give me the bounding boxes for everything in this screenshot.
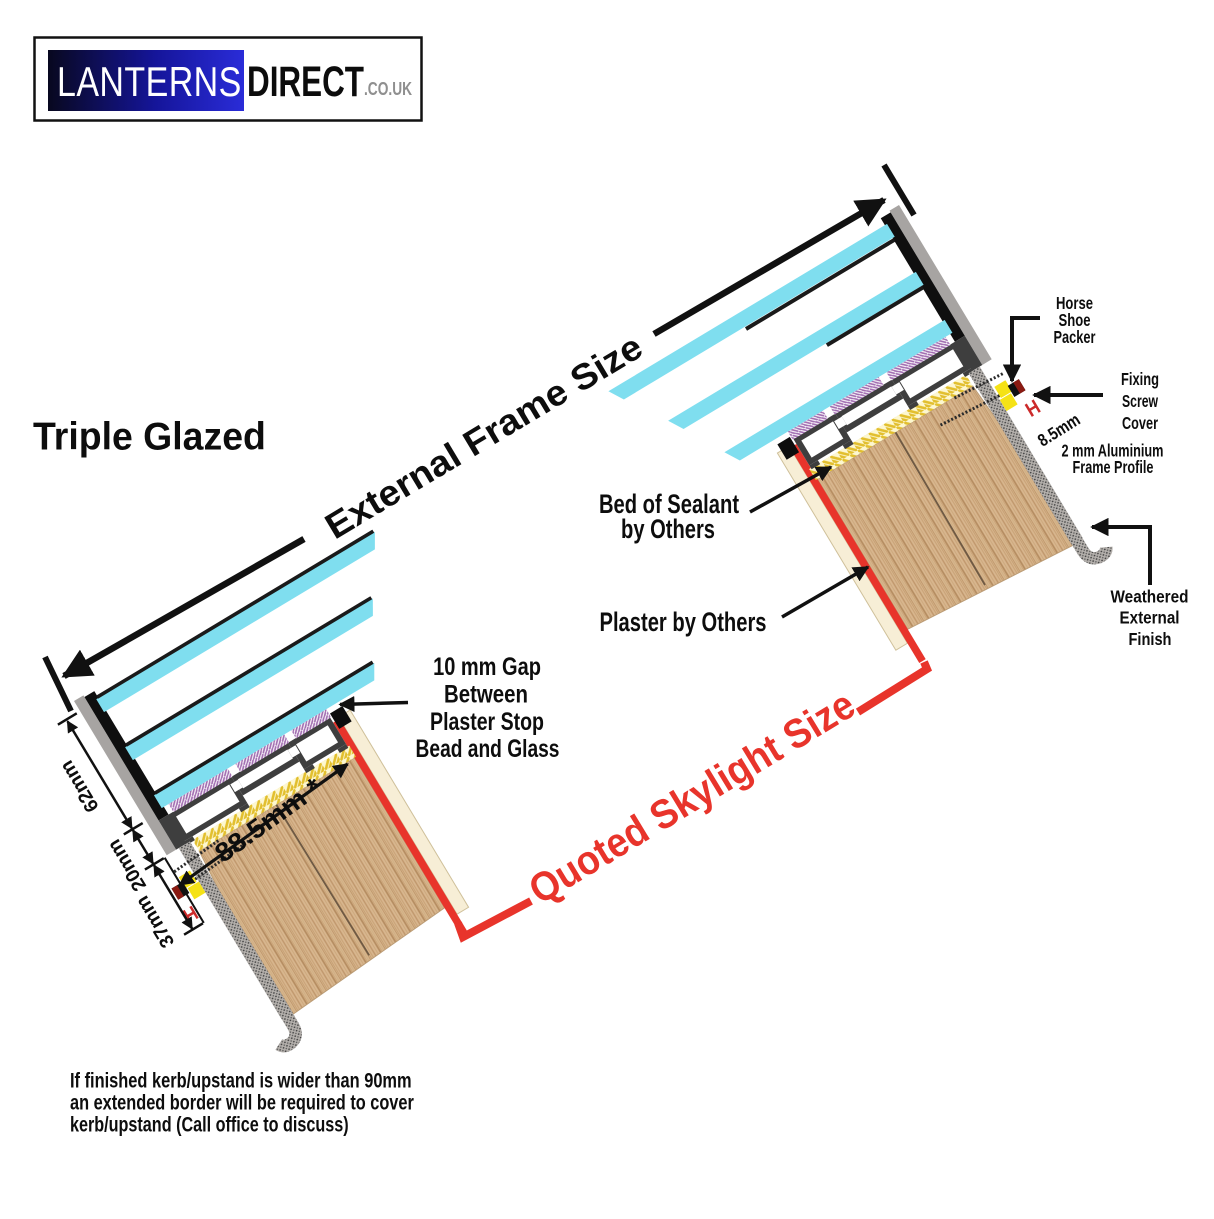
svg-text:Fixing: Fixing	[1121, 370, 1159, 390]
svg-text:Finish: Finish	[1129, 630, 1172, 650]
svg-text:DIRECT: DIRECT	[247, 57, 364, 105]
svg-text:Between: Between	[444, 680, 528, 708]
svg-text:an extended border will be req: an extended border will be required to c…	[70, 1091, 414, 1115]
svg-text:10 mm Gap: 10 mm Gap	[433, 653, 541, 681]
svg-text:kerb/upstand (Call office to d: kerb/upstand (Call office to discuss)	[70, 1113, 349, 1137]
svg-text:If finished kerb/upstand is wi: If finished kerb/upstand is wider than 9…	[70, 1070, 412, 1094]
svg-text:Bead and Glass: Bead and Glass	[416, 735, 560, 763]
svg-text:by Others: by Others	[621, 514, 715, 545]
svg-text:Plaster by Others: Plaster by Others	[599, 607, 766, 638]
svg-text:External: External	[1119, 607, 1179, 628]
svg-text:.CO.UK: .CO.UK	[364, 80, 412, 99]
svg-text:LANTERNS: LANTERNS	[57, 60, 242, 106]
svg-text:Screw: Screw	[1122, 392, 1158, 412]
svg-text:Cover: Cover	[1122, 414, 1158, 434]
svg-text:Plaster Stop: Plaster Stop	[430, 708, 544, 736]
svg-text:Frame Profile: Frame Profile	[1073, 458, 1154, 478]
svg-text:Triple Glazed: Triple Glazed	[33, 416, 266, 459]
svg-text:Weathered: Weathered	[1111, 586, 1189, 606]
svg-text:Packer: Packer	[1053, 328, 1095, 347]
